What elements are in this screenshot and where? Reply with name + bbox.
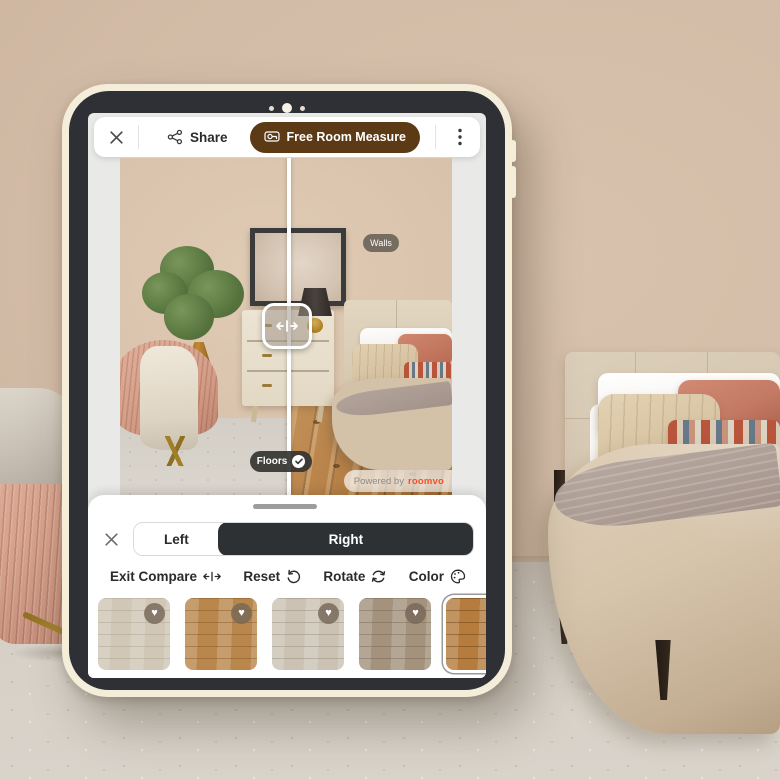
bed <box>540 340 780 780</box>
palette-icon <box>450 569 466 584</box>
tablet-device: Share Free Room Measure <box>62 84 512 697</box>
reset-label: Reset <box>243 569 280 584</box>
room-visualizer-photo: Walls Floors Powered by roomvo <box>120 158 452 496</box>
reset-undo-icon <box>286 569 301 584</box>
color-label: Color <box>409 569 444 584</box>
rotate-label: Rotate <box>323 569 365 584</box>
top-toolbar: Share Free Room Measure <box>94 117 480 157</box>
exit-compare-button[interactable]: Exit Compare <box>110 569 221 584</box>
close-icon <box>103 531 120 548</box>
close-icon <box>108 129 125 146</box>
share-label: Share <box>190 130 228 145</box>
dresser-leg <box>317 406 324 423</box>
share-button[interactable]: Share <box>139 129 244 145</box>
sheet-close-button[interactable] <box>97 525 125 553</box>
floor-swatch-natural-knotty-oak[interactable] <box>446 598 486 670</box>
close-button[interactable] <box>94 129 138 146</box>
floors-tag-label: Floors <box>257 456 288 467</box>
floors-selected-check <box>292 455 305 468</box>
favorite-heart-icon[interactable]: ♥ <box>405 603 426 624</box>
tab-left-label: Left <box>164 532 189 547</box>
floor-swatch-washed-gray-oak[interactable]: ♥ <box>272 598 344 670</box>
tablet-bezel: Share Free Room Measure <box>69 91 505 690</box>
color-button[interactable]: Color <box>409 569 466 584</box>
free-room-measure-label: Free Room Measure <box>287 130 406 144</box>
tab-right[interactable]: Right <box>218 522 474 556</box>
side-selector: Left Right <box>133 522 474 556</box>
rotate-icon <box>371 569 386 584</box>
compare-arrows-icon <box>276 320 298 332</box>
camera-dot <box>269 106 274 111</box>
compare-toolbar: Exit Compare Reset <box>88 561 486 591</box>
plant-leaves <box>164 294 214 340</box>
floors-tag-pill[interactable]: Floors <box>250 451 312 472</box>
tablet-volume-down-button <box>510 166 516 198</box>
app-screen: Share Free Room Measure <box>88 113 486 678</box>
floor-swatch-taupe-oak[interactable]: ♥ <box>359 598 431 670</box>
check-icon <box>295 458 303 465</box>
camera-lens <box>282 103 292 113</box>
screenshot-root: Share Free Room Measure <box>0 0 780 780</box>
bottom-sheet: Left Right Exit Compare <box>88 495 486 678</box>
favorite-heart-icon[interactable]: ♥ <box>318 603 339 624</box>
favorite-heart-icon[interactable]: ♥ <box>231 603 252 624</box>
dresser-leg <box>251 406 258 423</box>
walls-tag-label: Walls <box>370 238 392 248</box>
roomvo-logo: roomvo <box>408 476 444 487</box>
powered-by-label: Powered by <box>354 476 404 487</box>
reset-button[interactable]: Reset <box>243 569 301 584</box>
floor-swatch-light-cream-oak[interactable]: ♥ <box>98 598 170 670</box>
rotate-button[interactable]: Rotate <box>323 569 386 584</box>
floor-swatch-list: ♥♥♥♥ <box>98 598 486 670</box>
tape-measure-icon <box>264 130 280 144</box>
overflow-menu-button[interactable] <box>440 128 480 146</box>
kebab-menu-icon <box>458 128 462 146</box>
walls-tag-pill[interactable]: Walls <box>363 234 399 252</box>
exit-compare-label: Exit Compare <box>110 569 197 584</box>
drawer-knob <box>262 354 272 357</box>
photo-accent-chair <box>120 340 234 470</box>
free-room-measure-button[interactable]: Free Room Measure <box>250 122 420 153</box>
compare-arrows-icon <box>203 571 221 582</box>
tablet-volume-up-button <box>510 140 516 162</box>
drawer-knob <box>262 384 272 387</box>
share-icon <box>167 129 183 145</box>
compare-slider-handle[interactable] <box>262 303 312 349</box>
photo-chair-legs <box>140 436 210 466</box>
wood-knot <box>333 464 340 468</box>
powered-by-badge: Powered by roomvo <box>344 470 452 492</box>
tab-left[interactable]: Left <box>134 523 219 555</box>
favorite-heart-icon[interactable]: ♥ <box>144 603 165 624</box>
toolbar-divider <box>435 125 436 149</box>
photo-chair-throw <box>140 346 198 450</box>
floor-swatch-honey-oak[interactable]: ♥ <box>185 598 257 670</box>
tab-right-label: Right <box>329 532 364 547</box>
sheet-drag-handle[interactable] <box>253 504 317 509</box>
camera-dot <box>300 106 305 111</box>
